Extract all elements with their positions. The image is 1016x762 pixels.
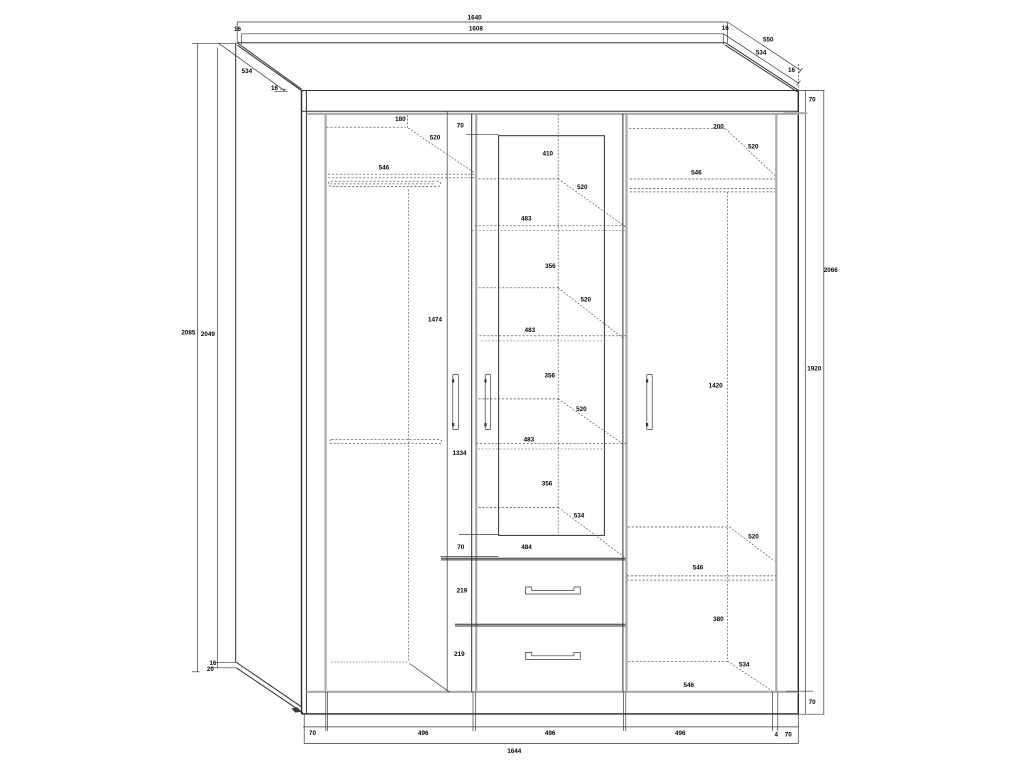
svg-text:2066: 2066 (824, 267, 839, 274)
svg-text:496: 496 (675, 730, 686, 737)
svg-text:483: 483 (524, 437, 535, 444)
svg-text:356: 356 (542, 481, 553, 488)
svg-text:534: 534 (756, 50, 767, 57)
svg-text:356: 356 (544, 373, 555, 380)
svg-text:1608: 1608 (469, 25, 484, 32)
svg-text:70: 70 (309, 730, 317, 737)
svg-text:219: 219 (454, 651, 465, 658)
svg-text:484: 484 (521, 544, 532, 551)
svg-text:16: 16 (271, 85, 279, 92)
svg-text:70: 70 (457, 123, 465, 130)
svg-text:520: 520 (580, 296, 591, 303)
svg-text:180: 180 (395, 116, 406, 123)
svg-text:70: 70 (809, 699, 817, 706)
svg-text:520: 520 (576, 406, 587, 413)
svg-text:534: 534 (242, 68, 253, 75)
svg-text:496: 496 (545, 730, 556, 737)
svg-text:2085: 2085 (181, 329, 196, 336)
svg-text:16: 16 (234, 26, 242, 33)
svg-text:70: 70 (457, 544, 465, 551)
svg-text:534: 534 (739, 662, 750, 669)
svg-text:546: 546 (379, 164, 390, 171)
svg-text:520: 520 (577, 184, 588, 191)
svg-text:520: 520 (430, 135, 441, 142)
svg-text:200: 200 (713, 123, 724, 130)
svg-text:546: 546 (684, 682, 695, 689)
svg-text:1640: 1640 (468, 15, 483, 22)
svg-text:70: 70 (809, 97, 817, 104)
svg-text:550: 550 (763, 37, 774, 44)
svg-text:380: 380 (713, 616, 724, 623)
svg-text:1334: 1334 (452, 450, 467, 457)
svg-text:520: 520 (748, 534, 759, 541)
svg-text:16: 16 (788, 67, 796, 74)
svg-text:219: 219 (457, 587, 468, 594)
svg-text:1920: 1920 (807, 366, 822, 373)
svg-text:483: 483 (521, 215, 532, 222)
svg-text:70: 70 (785, 732, 793, 739)
svg-text:483: 483 (525, 327, 536, 334)
svg-text:1420: 1420 (709, 383, 724, 390)
svg-text:16: 16 (722, 25, 730, 32)
svg-text:496: 496 (418, 730, 429, 737)
svg-text:20: 20 (207, 666, 215, 673)
svg-text:2049: 2049 (201, 331, 216, 338)
svg-text:1474: 1474 (428, 317, 443, 324)
svg-text:4: 4 (774, 732, 778, 739)
svg-text:534: 534 (574, 512, 585, 519)
svg-text:546: 546 (693, 564, 704, 571)
svg-text:410: 410 (542, 151, 553, 158)
svg-text:520: 520 (748, 143, 759, 150)
svg-text:1644: 1644 (507, 748, 522, 755)
svg-text:546: 546 (691, 170, 702, 177)
svg-text:356: 356 (545, 263, 556, 270)
